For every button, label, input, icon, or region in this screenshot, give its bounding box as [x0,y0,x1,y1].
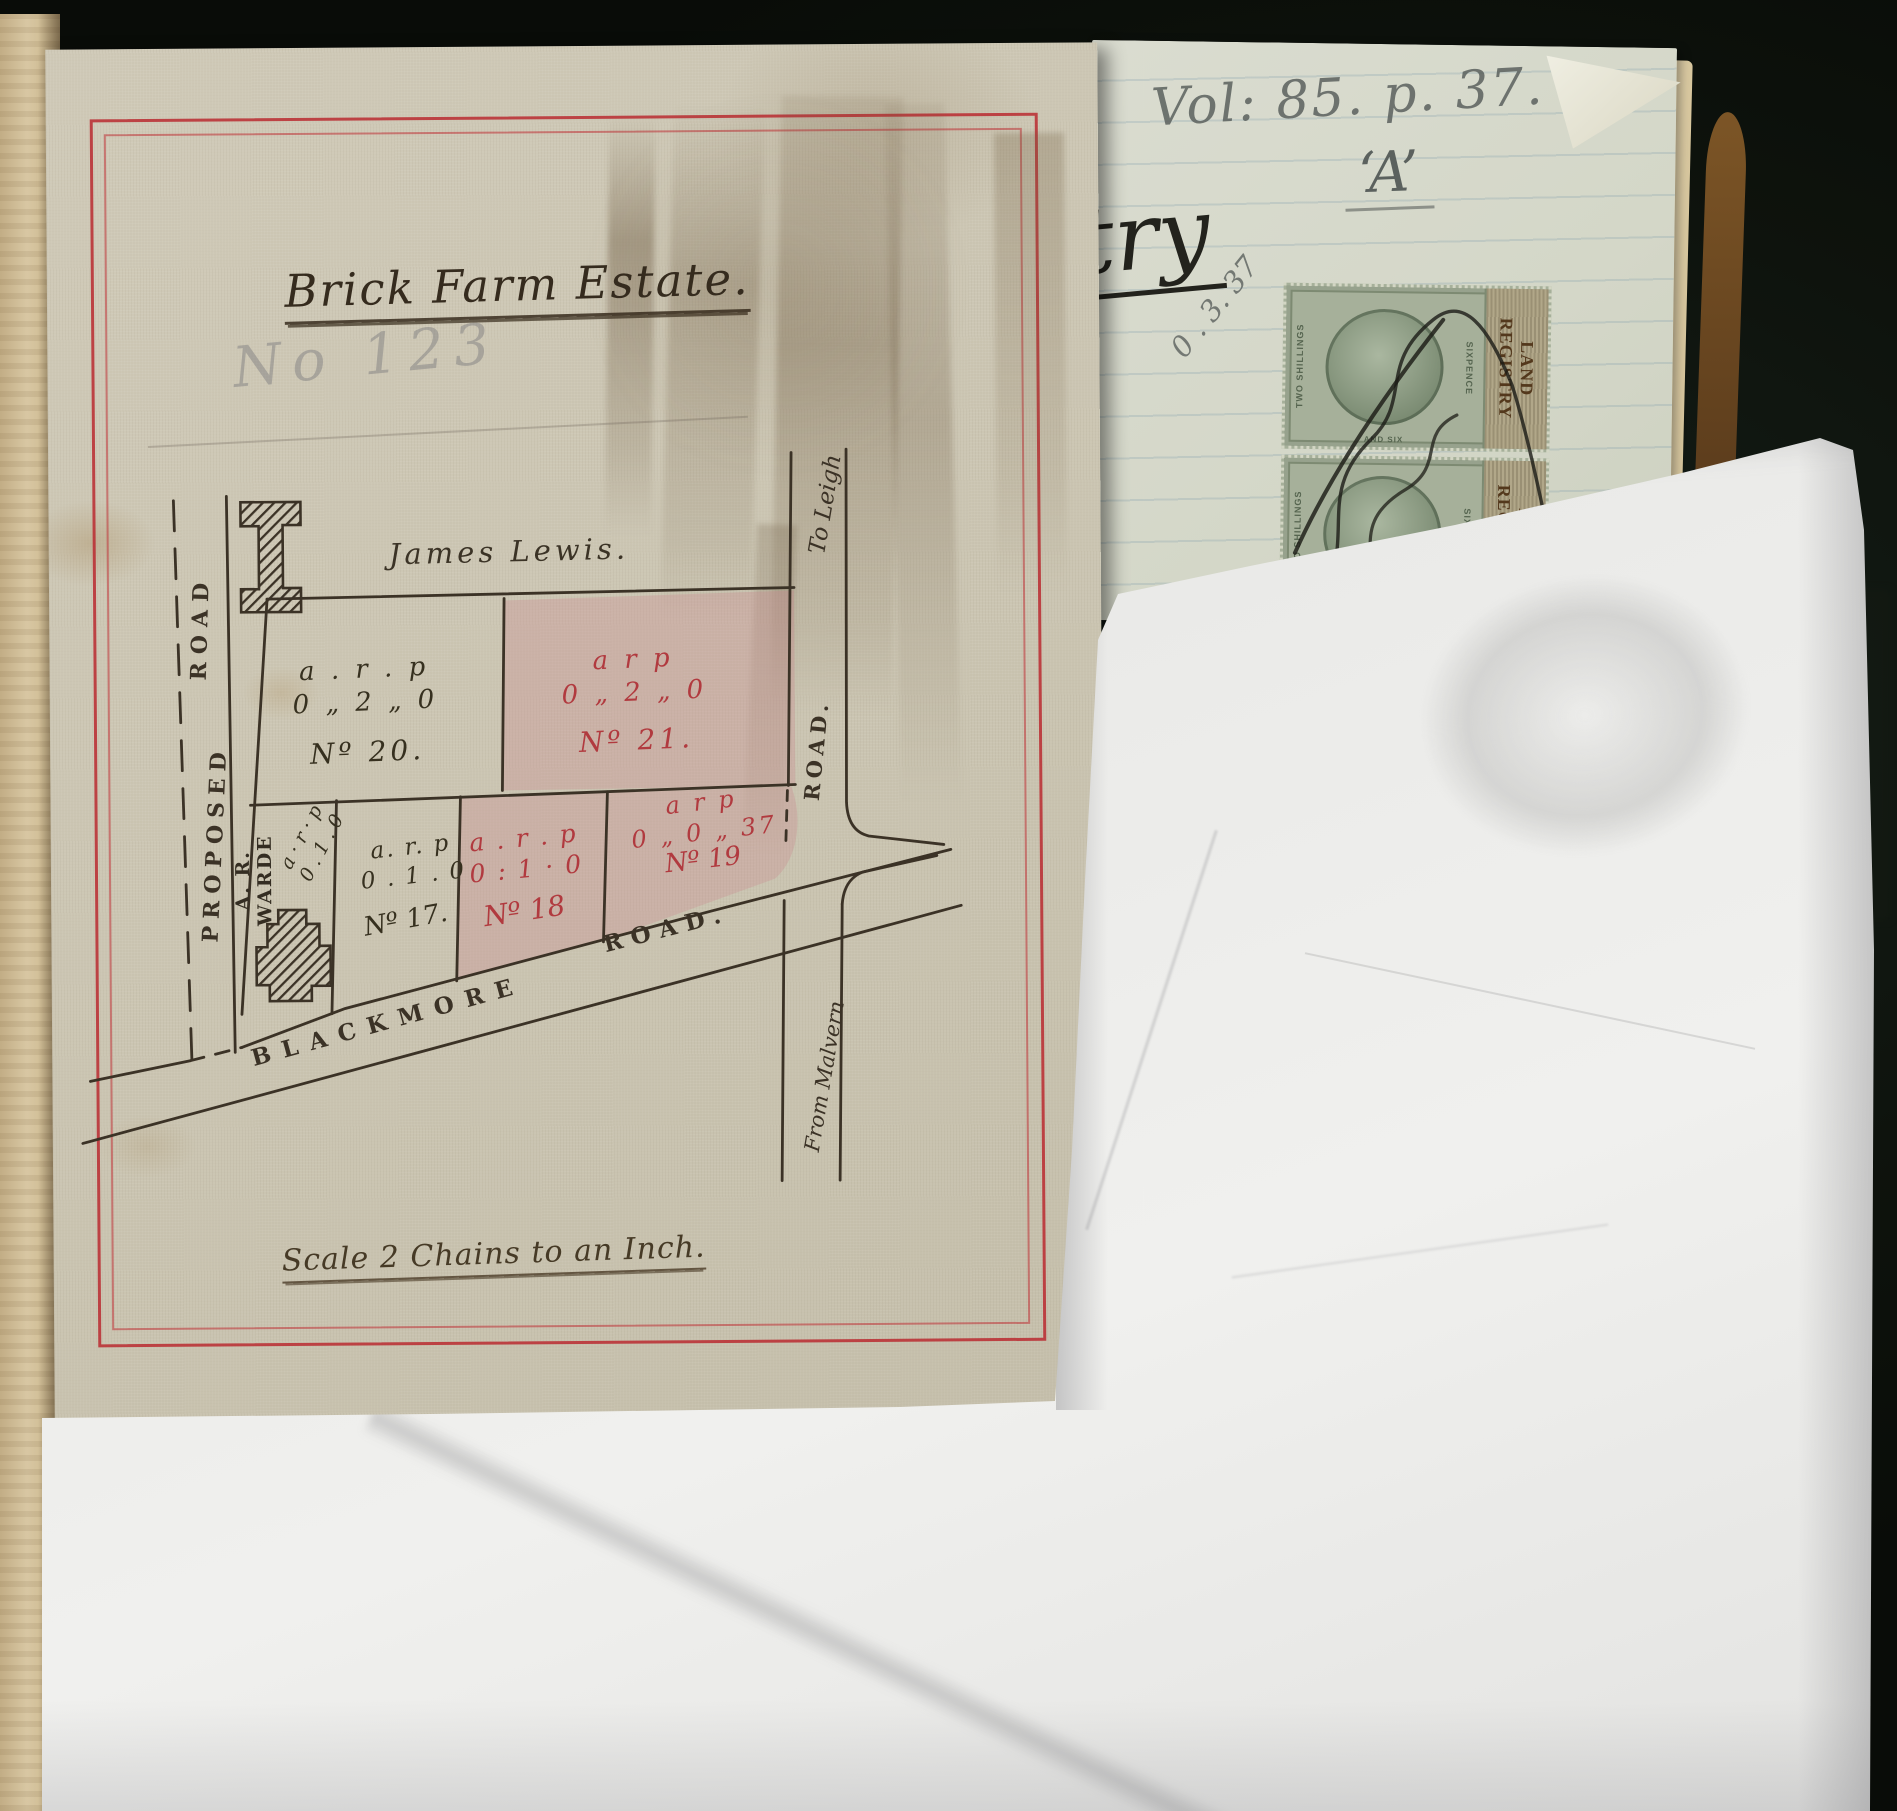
sheet-right-edge-shade [1798,430,1874,1811]
plot-21-label: a r p 0 „ 2 „ 0 Nº 21. [547,640,722,761]
plot-20-number: Nº 20. [287,731,448,773]
building-hatched-north [240,502,301,612]
plot-21-area: 0 „ 2 „ 0 [549,673,720,713]
section-letter-mark: ‘A’ [1343,138,1434,211]
scanned-registry-page: Vol: 85. p. 37. ‘A’ try 0 . 3. 37 TWO SH… [0,0,1897,1811]
volume-reference: Vol: 85. p. 37. [1150,57,1546,139]
water-stain [1398,548,1772,881]
plot-20-label: a . r . p 0 „ 2 „ 0 Nº 20. [283,650,448,773]
sheet-bottom-shade [42,1700,1872,1811]
road-label-proposed-road-word: ROAD [186,572,215,683]
map-sheet: Brick Farm Estate. No 123 James Lewis. a… [45,42,1107,1421]
crease-line [1305,952,1755,1050]
plot-20-area: 0 „ 2 „ 0 [285,683,446,722]
plot-21-number: Nº 21. [551,719,722,761]
owner-name-label: James Lewis. [388,532,629,572]
crease-line [1232,1224,1609,1279]
plot-18-label: a . r . p 0 : 1 · 0 [452,816,597,891]
